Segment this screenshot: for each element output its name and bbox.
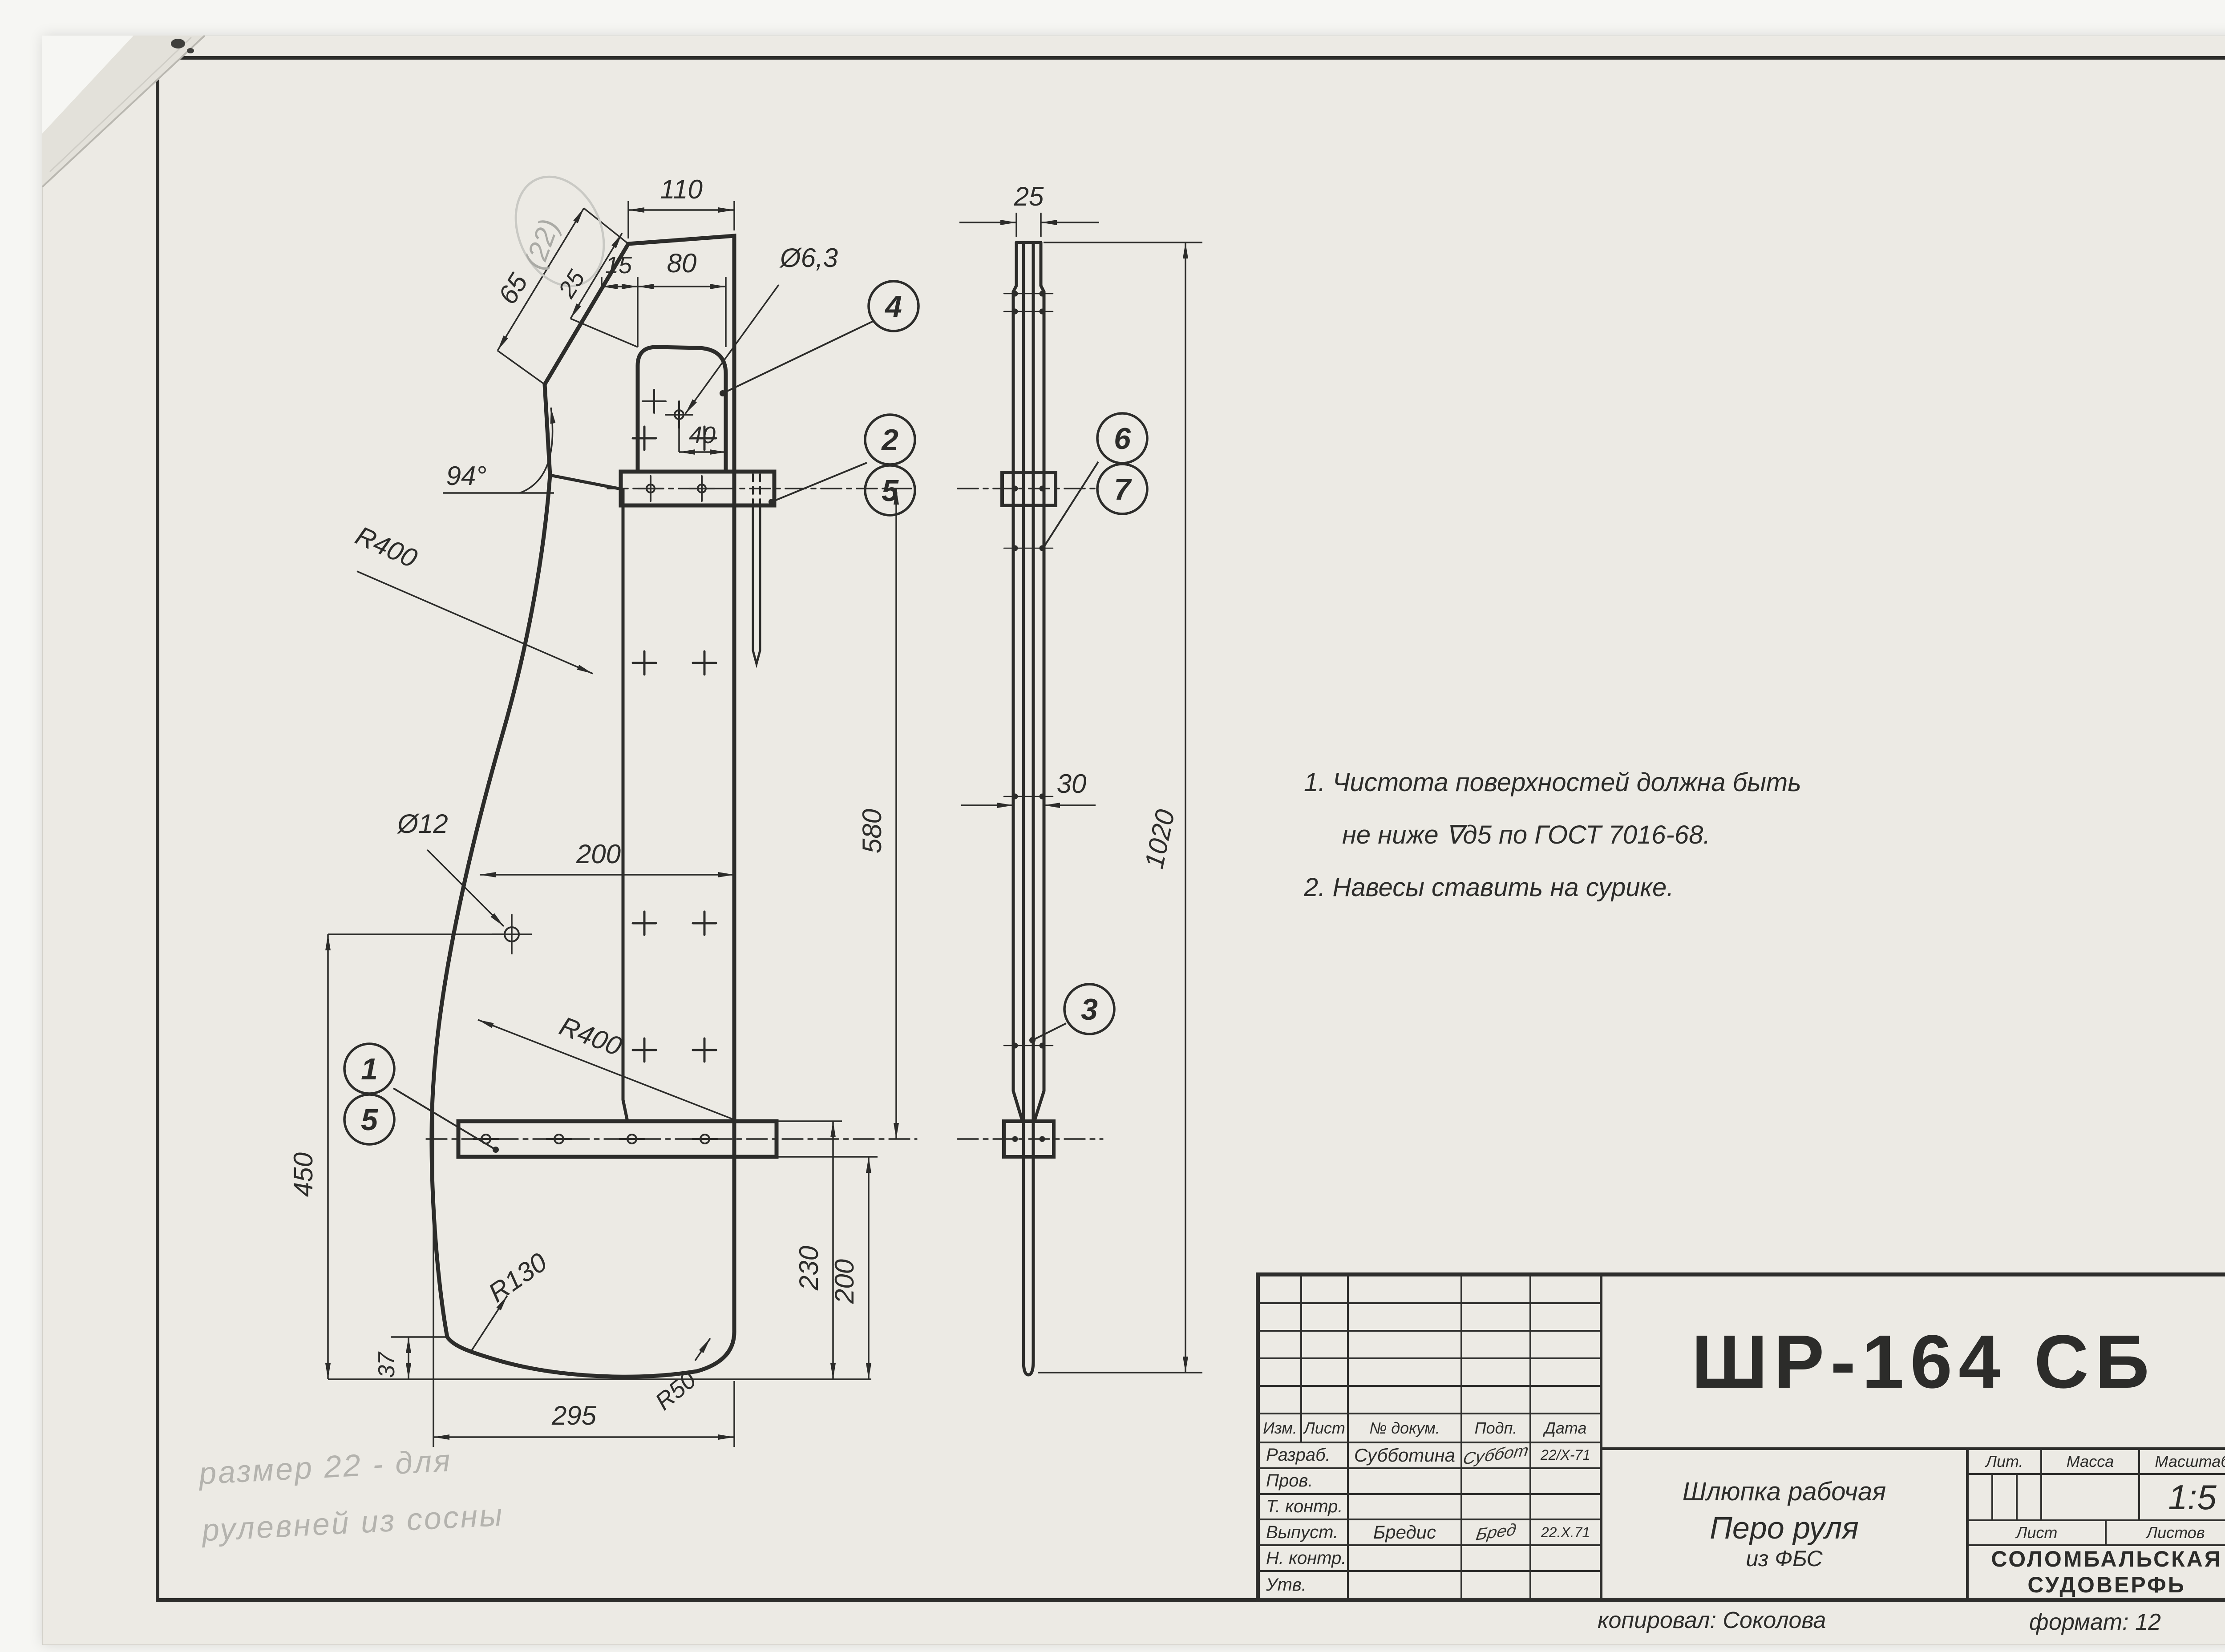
lit-label: Лит. bbox=[1969, 1450, 2042, 1475]
prov-name bbox=[1349, 1469, 1462, 1495]
header-data: Дата bbox=[1531, 1414, 1600, 1443]
balloon-callouts bbox=[344, 281, 1147, 1153]
rev-cell bbox=[1260, 1276, 1302, 1304]
tkontr-signature bbox=[1462, 1495, 1531, 1521]
header-ndokum: № докум. bbox=[1349, 1414, 1462, 1443]
rev-cell bbox=[1302, 1304, 1349, 1332]
rev-cell bbox=[1302, 1332, 1349, 1359]
rev-cell bbox=[1302, 1359, 1349, 1387]
folded-corner bbox=[42, 36, 205, 187]
role-vypust: Выпуст. bbox=[1260, 1520, 1349, 1546]
listov-label: Листов bbox=[2107, 1521, 2225, 1546]
dim-30: 30 bbox=[1057, 769, 1087, 799]
front-dim-texts: 110 15 80 Ø6,3 65 25 40 94° R400 R400 Ø1… bbox=[288, 174, 887, 1430]
rev-cell bbox=[1462, 1359, 1531, 1387]
pintle-pin bbox=[753, 505, 760, 664]
balloon-5-upper: 5 bbox=[882, 474, 899, 508]
header-podp: Подп. bbox=[1462, 1414, 1531, 1443]
rev-cell bbox=[1531, 1332, 1600, 1359]
utv-signature bbox=[1462, 1572, 1531, 1598]
rev-cell bbox=[1462, 1332, 1531, 1359]
rev-cell bbox=[1349, 1276, 1462, 1304]
rev-cell bbox=[1302, 1387, 1349, 1414]
utv-date bbox=[1531, 1572, 1600, 1598]
rev-cell bbox=[1462, 1387, 1531, 1414]
balloon-6: 6 bbox=[1114, 422, 1131, 456]
tkontr-name bbox=[1349, 1495, 1462, 1521]
format-left: формат: 12 bbox=[2029, 1609, 2161, 1636]
product-name-cell: Шлюпка рабочая Перо руля из ФБС bbox=[1602, 1450, 1969, 1598]
pencil-dim-22: (22) bbox=[518, 215, 566, 274]
rev-cell bbox=[1349, 1359, 1462, 1387]
prov-signature bbox=[1462, 1469, 1531, 1495]
role-utv: Утв. bbox=[1260, 1572, 1349, 1598]
dim-580: 580 bbox=[857, 809, 887, 853]
dim-r400-upper: R400 bbox=[351, 520, 421, 574]
dim-80: 80 bbox=[667, 248, 697, 278]
dim-200-mid: 200 bbox=[576, 839, 621, 869]
note-line: 2. Навесы ставить на сурике. bbox=[1304, 861, 2194, 914]
rev-cell bbox=[1260, 1332, 1302, 1359]
dim-d63: Ø6,3 bbox=[779, 243, 838, 273]
side-blade bbox=[1023, 242, 1033, 1375]
header-izm: Изм. bbox=[1260, 1414, 1302, 1443]
scan-background: 110 15 80 Ø6,3 65 25 40 94° R400 R400 Ø1… bbox=[0, 0, 2225, 1652]
front-view bbox=[426, 236, 917, 1377]
blade-outline bbox=[432, 236, 734, 1377]
nail-crosses bbox=[633, 427, 716, 1062]
lit-sub bbox=[1993, 1475, 2018, 1519]
dim-25: 25 bbox=[553, 265, 591, 303]
dim-94deg: 94° bbox=[446, 461, 487, 491]
rev-cell bbox=[1462, 1304, 1531, 1332]
razrab-name: Субботина bbox=[1349, 1443, 1462, 1469]
razrab-date: 22/X-71 bbox=[1531, 1443, 1600, 1469]
dim-200-right: 200 bbox=[829, 1259, 859, 1304]
side-view bbox=[958, 242, 1103, 1375]
rev-cell bbox=[1302, 1276, 1349, 1304]
rev-cell bbox=[1462, 1276, 1531, 1304]
balloon-7: 7 bbox=[1114, 473, 1132, 506]
balloon-4: 4 bbox=[884, 290, 902, 323]
rev-cell bbox=[1260, 1359, 1302, 1387]
prov-date bbox=[1531, 1469, 1600, 1495]
balloon-3: 3 bbox=[1081, 993, 1098, 1026]
role-nkontr: Н. контр. bbox=[1260, 1546, 1349, 1572]
head-plate-hole bbox=[643, 390, 692, 428]
side-rivet-dots bbox=[1012, 291, 1045, 1142]
dim-110: 110 bbox=[660, 174, 703, 204]
razrab-signature: Суббот bbox=[1462, 1443, 1531, 1469]
cheek-strip-edge bbox=[623, 489, 627, 1121]
role-razrab: Разраб. bbox=[1260, 1443, 1349, 1469]
role-tkontr: Т. контр. bbox=[1260, 1495, 1349, 1521]
rev-cell bbox=[1260, 1387, 1302, 1414]
head-plate bbox=[638, 347, 726, 472]
rev-cell bbox=[1531, 1387, 1600, 1414]
massa-value bbox=[2042, 1475, 2140, 1521]
product-line: Шлюпка рабочая bbox=[1683, 1477, 1886, 1507]
dim-450: 450 bbox=[288, 1152, 318, 1197]
technical-notes: 1. Чистота поверхностей должна быть не н… bbox=[1304, 756, 2194, 914]
nkontr-name bbox=[1349, 1546, 1462, 1572]
balloon-5-lower: 5 bbox=[361, 1103, 378, 1137]
vypust-name: Бредис bbox=[1349, 1520, 1462, 1546]
rev-cell bbox=[1531, 1359, 1600, 1387]
rev-cell bbox=[1531, 1304, 1600, 1332]
nkontr-signature bbox=[1462, 1546, 1531, 1572]
dim-295: 295 bbox=[551, 1401, 597, 1430]
head-bottom-edge bbox=[550, 475, 623, 489]
dim-65: 65 bbox=[493, 268, 534, 310]
dim-d12: Ø12 bbox=[396, 809, 448, 839]
part-line2: из ФБС bbox=[1746, 1546, 1822, 1571]
centerlines bbox=[426, 489, 917, 1139]
rev-cell bbox=[1531, 1276, 1600, 1304]
tkontr-date bbox=[1531, 1495, 1600, 1521]
side-cheek-left bbox=[1013, 242, 1022, 1120]
note-line: не ниже ∇д5 по ГОСТ 7016-68. bbox=[1304, 809, 2194, 861]
rev-cell bbox=[1349, 1332, 1462, 1359]
lit-sub bbox=[2018, 1475, 2040, 1519]
vypust-signature: Бред bbox=[1462, 1520, 1531, 1546]
side-cheek-right bbox=[1035, 242, 1044, 1120]
nkontr-date bbox=[1531, 1546, 1600, 1572]
pencil-annotation: размер 22 - для рулевней из сосны bbox=[198, 1429, 506, 1559]
dim-37: 37 bbox=[374, 1351, 400, 1378]
dim-r130: R130 bbox=[483, 1247, 552, 1308]
pintle-hidden bbox=[753, 474, 760, 505]
title-block-left: Изм. Лист № докум. Подп. Дата Разраб. Су… bbox=[1256, 1272, 2225, 1602]
role-prov: Пров. bbox=[1260, 1469, 1349, 1495]
masshtab-label: Масштаб bbox=[2140, 1450, 2225, 1475]
balloon-1: 1 bbox=[361, 1052, 378, 1086]
doc-number-assembly: ШР-164 СБ bbox=[1602, 1276, 2225, 1450]
utv-name bbox=[1349, 1572, 1462, 1598]
side-dim-texts: 25 30 1020 bbox=[1014, 182, 1181, 871]
dim-230: 230 bbox=[794, 1246, 824, 1291]
rev-cell bbox=[1260, 1304, 1302, 1332]
company-name: СОЛОМБАЛЬСКАЯ СУДОВЕРФЬ bbox=[1969, 1546, 2225, 1598]
part-line: Перо руля bbox=[1710, 1510, 1859, 1546]
balloon-numbers: 4 2 5 1 5 6 7 3 bbox=[361, 290, 1132, 1137]
massa-label: Масса bbox=[2042, 1450, 2140, 1475]
header-list: Лист bbox=[1302, 1414, 1349, 1443]
vypust-date: 22.X.71 bbox=[1531, 1520, 1600, 1546]
dim-25-side: 25 bbox=[1014, 182, 1044, 211]
scale-value: 1:5 bbox=[2140, 1475, 2225, 1521]
rev-cell bbox=[1349, 1387, 1462, 1414]
balloon-2: 2 bbox=[881, 423, 898, 457]
dim-1020: 1020 bbox=[1139, 807, 1180, 871]
dim-15: 15 bbox=[605, 252, 632, 279]
rev-cell bbox=[1349, 1304, 1462, 1332]
dim-40: 40 bbox=[689, 422, 716, 448]
lit-sub bbox=[1969, 1475, 1993, 1519]
list-label: Лист bbox=[1969, 1521, 2107, 1546]
note-line: 1. Чистота поверхностей должна быть bbox=[1304, 756, 2194, 809]
copied-by-left: копировал: Соколова bbox=[1598, 1607, 1826, 1634]
